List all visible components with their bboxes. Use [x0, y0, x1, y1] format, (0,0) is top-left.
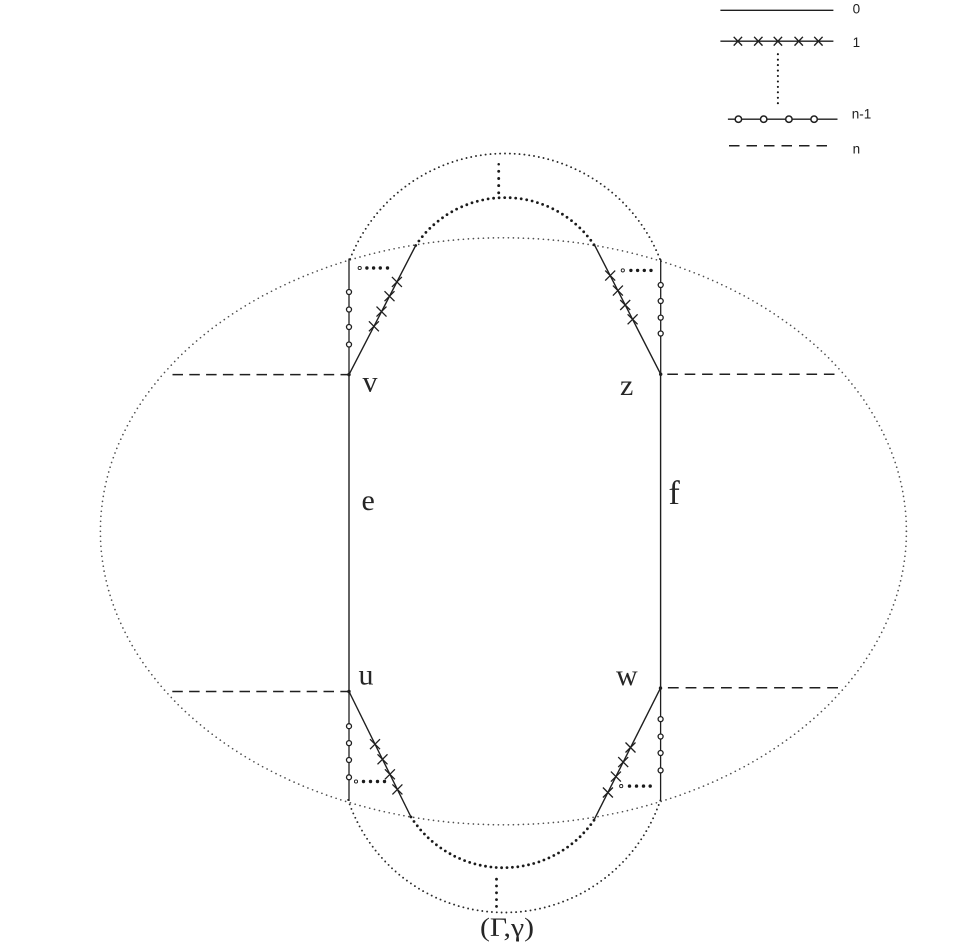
svg-text:n-1: n-1 [852, 106, 872, 121]
svg-text:(Γ,γ): (Γ,γ) [480, 913, 534, 942]
svg-text:f: f [669, 475, 681, 512]
svg-text:w: w [616, 659, 638, 692]
svg-text:n: n [853, 142, 861, 157]
svg-text:u: u [359, 659, 374, 692]
svg-text:v: v [363, 366, 378, 399]
svg-text:0: 0 [853, 2, 861, 17]
svg-text:z: z [620, 369, 633, 402]
svg-text:1: 1 [853, 35, 861, 50]
svg-text:e: e [362, 484, 375, 517]
